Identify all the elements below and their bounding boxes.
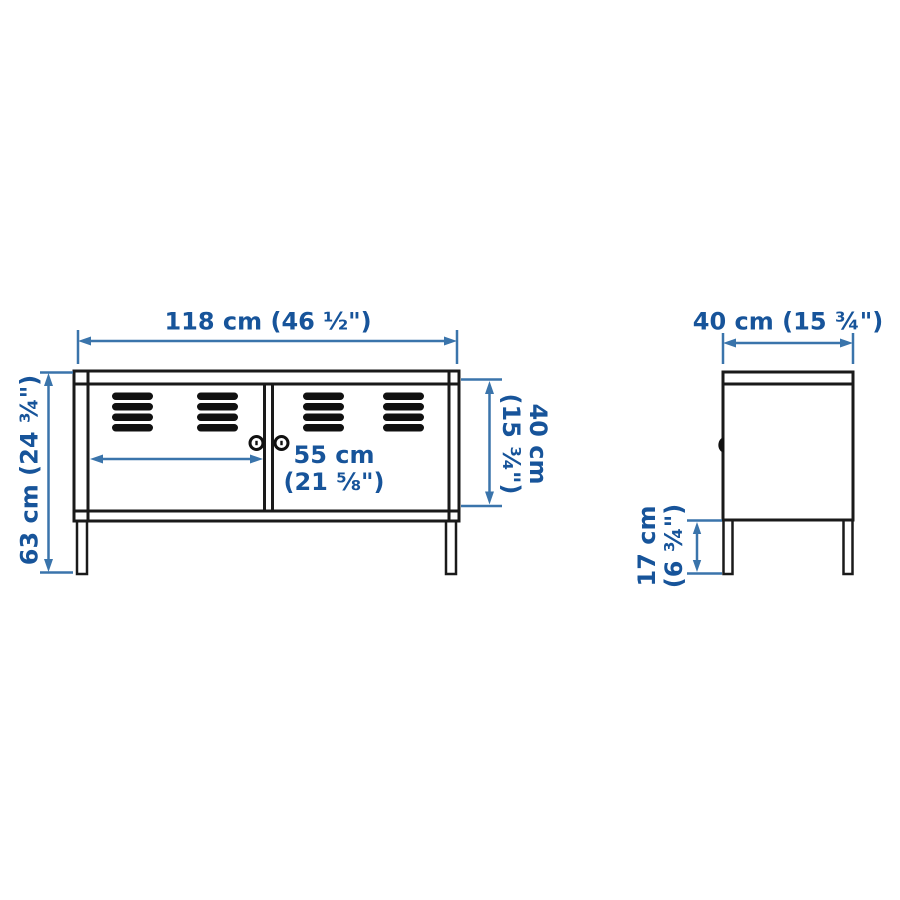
body-height-label-line1: 40 cm <box>524 393 551 494</box>
front-view-drawing <box>74 371 459 574</box>
front-right-leg <box>446 521 456 574</box>
door-width-dimension-line <box>90 455 263 464</box>
arrowhead-up <box>485 381 494 394</box>
arrowhead-left <box>723 339 736 348</box>
front-left-leg <box>77 521 87 574</box>
front-height-label: 63 cm (24 ¾") <box>17 375 44 565</box>
body-height-dimension-line <box>461 380 502 507</box>
arrowhead-down <box>485 492 494 505</box>
dimension-diagram: 118 cm (46 ½") 63 cm (24 ¾") 55 cm (21 ⅝… <box>0 0 900 900</box>
side-cabinet-body <box>723 372 853 520</box>
lock-icons <box>250 437 288 450</box>
door-width-label-line2: (21 ⅝") <box>283 469 384 496</box>
arrowhead-down <box>44 559 53 572</box>
arrowhead-left <box>90 455 103 464</box>
arrowhead-right <box>250 455 263 464</box>
side-knob <box>718 438 724 453</box>
body-height-label: 40 cm (15 ¾") <box>497 393 551 494</box>
leg-height-label: 17 cm (6 ¾") <box>634 504 688 588</box>
side-right-leg <box>844 520 853 574</box>
leg-height-label-line1: 17 cm <box>634 504 661 588</box>
front-width-label: 118 cm (46 ½") <box>164 309 371 336</box>
door-width-label: 55 cm (21 ⅝") <box>283 442 384 496</box>
arrowhead-left <box>78 337 91 346</box>
arrowhead-right <box>444 337 457 346</box>
arrowhead-up <box>693 522 701 534</box>
side-view-drawing <box>723 372 853 574</box>
leg-height-dimension-line <box>687 521 722 574</box>
side-left-leg <box>724 520 733 574</box>
arrowhead-down <box>693 560 701 572</box>
body-height-label-line2: (15 ¾") <box>497 393 524 494</box>
side-depth-dimension-line <box>723 333 853 364</box>
louver-vents <box>112 393 424 432</box>
front-height-dimension-line <box>40 373 73 573</box>
line-drawing <box>0 0 900 900</box>
side-depth-label: 40 cm (15 ¾") <box>693 309 883 336</box>
door-width-label-line1: 55 cm <box>283 442 384 469</box>
arrowhead-up <box>44 373 53 386</box>
leg-height-label-line2: (6 ¾") <box>661 504 688 588</box>
arrowhead-right <box>840 339 853 348</box>
